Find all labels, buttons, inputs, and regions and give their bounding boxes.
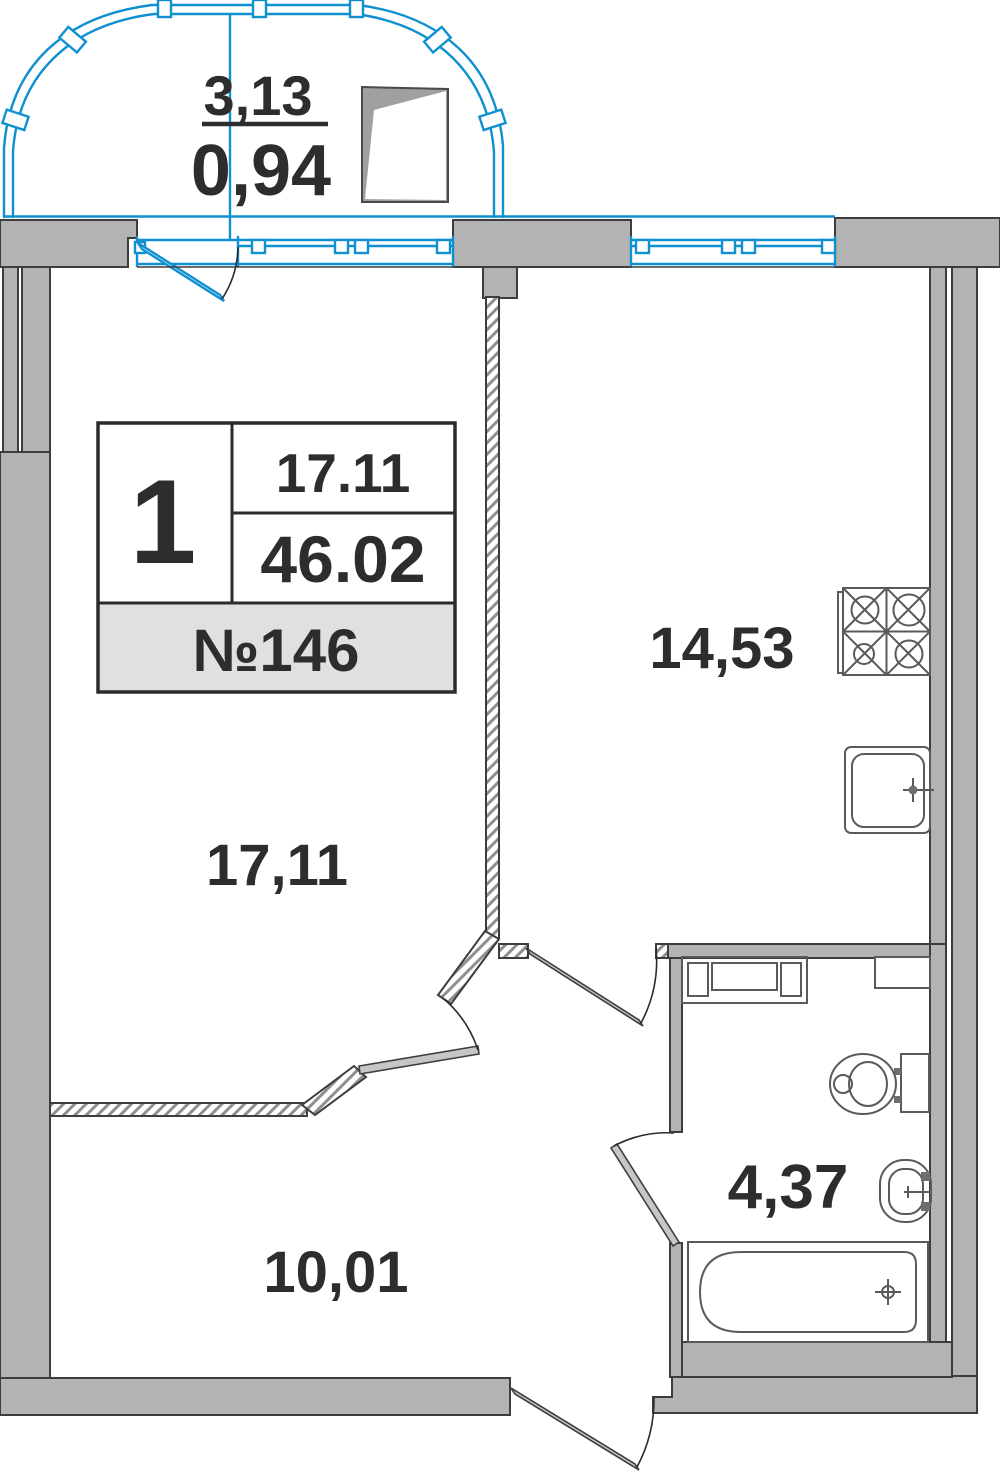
kitchen-area-label: 14,53 bbox=[649, 616, 794, 681]
unit-info-card: 1 17.11 46.02 №146 bbox=[98, 423, 455, 692]
kitchen-sink-icon bbox=[845, 747, 934, 833]
door-leaf bbox=[611, 1144, 679, 1246]
door-living-hall bbox=[359, 999, 479, 1074]
partition-living-hall bbox=[50, 1103, 307, 1116]
railing-post-icon bbox=[350, 0, 363, 17]
wall-top-right-block bbox=[835, 218, 1000, 267]
railing-post-icon bbox=[158, 0, 171, 17]
door-leaf bbox=[526, 948, 643, 1026]
living-area-value: 17.11 bbox=[276, 442, 411, 504]
wall-bathroom-bottom bbox=[682, 1342, 952, 1377]
wall-right-inner-kitchen bbox=[930, 267, 946, 944]
rooms-count-label: 1 bbox=[130, 455, 197, 589]
floor-plan-page: 3,13 0,94 bbox=[0, 0, 1000, 1474]
railing-post-icon bbox=[253, 0, 266, 17]
shelf-niche bbox=[875, 957, 930, 988]
washbasin-icon bbox=[880, 1160, 931, 1222]
balcony-area-total-label: 3,13 bbox=[204, 64, 313, 127]
living-room-area-label: 17,11 bbox=[206, 833, 348, 898]
partition-living-kitchen bbox=[486, 297, 499, 938]
wall-top-middle-block bbox=[453, 220, 631, 267]
wall-bathroom-left-upper bbox=[670, 958, 682, 1132]
wall-bathroom-top bbox=[668, 944, 930, 958]
toilet-icon bbox=[830, 1054, 929, 1114]
door-swing-arc bbox=[444, 999, 478, 1050]
door-entry bbox=[511, 1388, 654, 1470]
window-kitchen bbox=[631, 236, 835, 267]
casement-mark-icon bbox=[822, 240, 835, 253]
balcony-area-reduced-label: 0,94 bbox=[191, 131, 331, 211]
casement-mark-icon bbox=[742, 240, 755, 253]
door-swing-arc bbox=[637, 1398, 654, 1467]
wall-balcony-side-inner bbox=[22, 267, 50, 453]
wall-balcony-side-outer bbox=[3, 267, 18, 453]
wall-right-outer bbox=[952, 267, 977, 1376]
bathroom-area-label: 4,37 bbox=[728, 1153, 849, 1222]
casement-mark-icon bbox=[722, 240, 735, 253]
wall-bottom-right bbox=[653, 1376, 977, 1413]
casement-mark-icon bbox=[437, 240, 450, 253]
washing-machine-icon bbox=[682, 957, 807, 1003]
stove-icon bbox=[838, 588, 930, 675]
door-leaf bbox=[511, 1388, 639, 1470]
window-balcony bbox=[135, 236, 453, 301]
unit-number-label: №146 bbox=[193, 617, 360, 684]
casement-mark-icon bbox=[636, 240, 649, 253]
railing-post-icon bbox=[424, 27, 451, 53]
wall-bathroom-left-lower bbox=[670, 1243, 682, 1377]
casement-mark-icon bbox=[335, 240, 348, 253]
floor-plan-drawing: 3,13 0,94 bbox=[0, 0, 1000, 1474]
partition-stub bbox=[499, 944, 528, 958]
wall-partition-head bbox=[483, 267, 517, 298]
casement-mark-icon bbox=[355, 240, 368, 253]
wall-top-left-block bbox=[0, 220, 137, 267]
bathtub-icon bbox=[688, 1242, 928, 1342]
wall-left bbox=[0, 452, 50, 1415]
door-swing-arc bbox=[614, 1133, 674, 1146]
partition-sliver bbox=[656, 944, 668, 958]
wall-bottom-left bbox=[0, 1378, 510, 1415]
partition-walls bbox=[50, 297, 668, 1116]
casement-mark-icon bbox=[252, 240, 265, 253]
balcony-door-leaf bbox=[138, 243, 224, 301]
balcony-door-arc bbox=[222, 247, 238, 299]
total-area-value: 46.02 bbox=[260, 522, 425, 596]
door-kitchen-hall bbox=[526, 948, 657, 1026]
partition-angled-upper bbox=[438, 931, 499, 1004]
door-bathroom bbox=[611, 1133, 679, 1246]
hall-area-label: 10,01 bbox=[263, 1240, 408, 1305]
door-leaf bbox=[359, 1046, 479, 1074]
balcony-area-icon bbox=[362, 87, 448, 202]
partition-angled-lower bbox=[302, 1066, 366, 1115]
wall-right-inner-bathroom bbox=[930, 944, 946, 1342]
door-swing-arc bbox=[641, 948, 657, 1023]
